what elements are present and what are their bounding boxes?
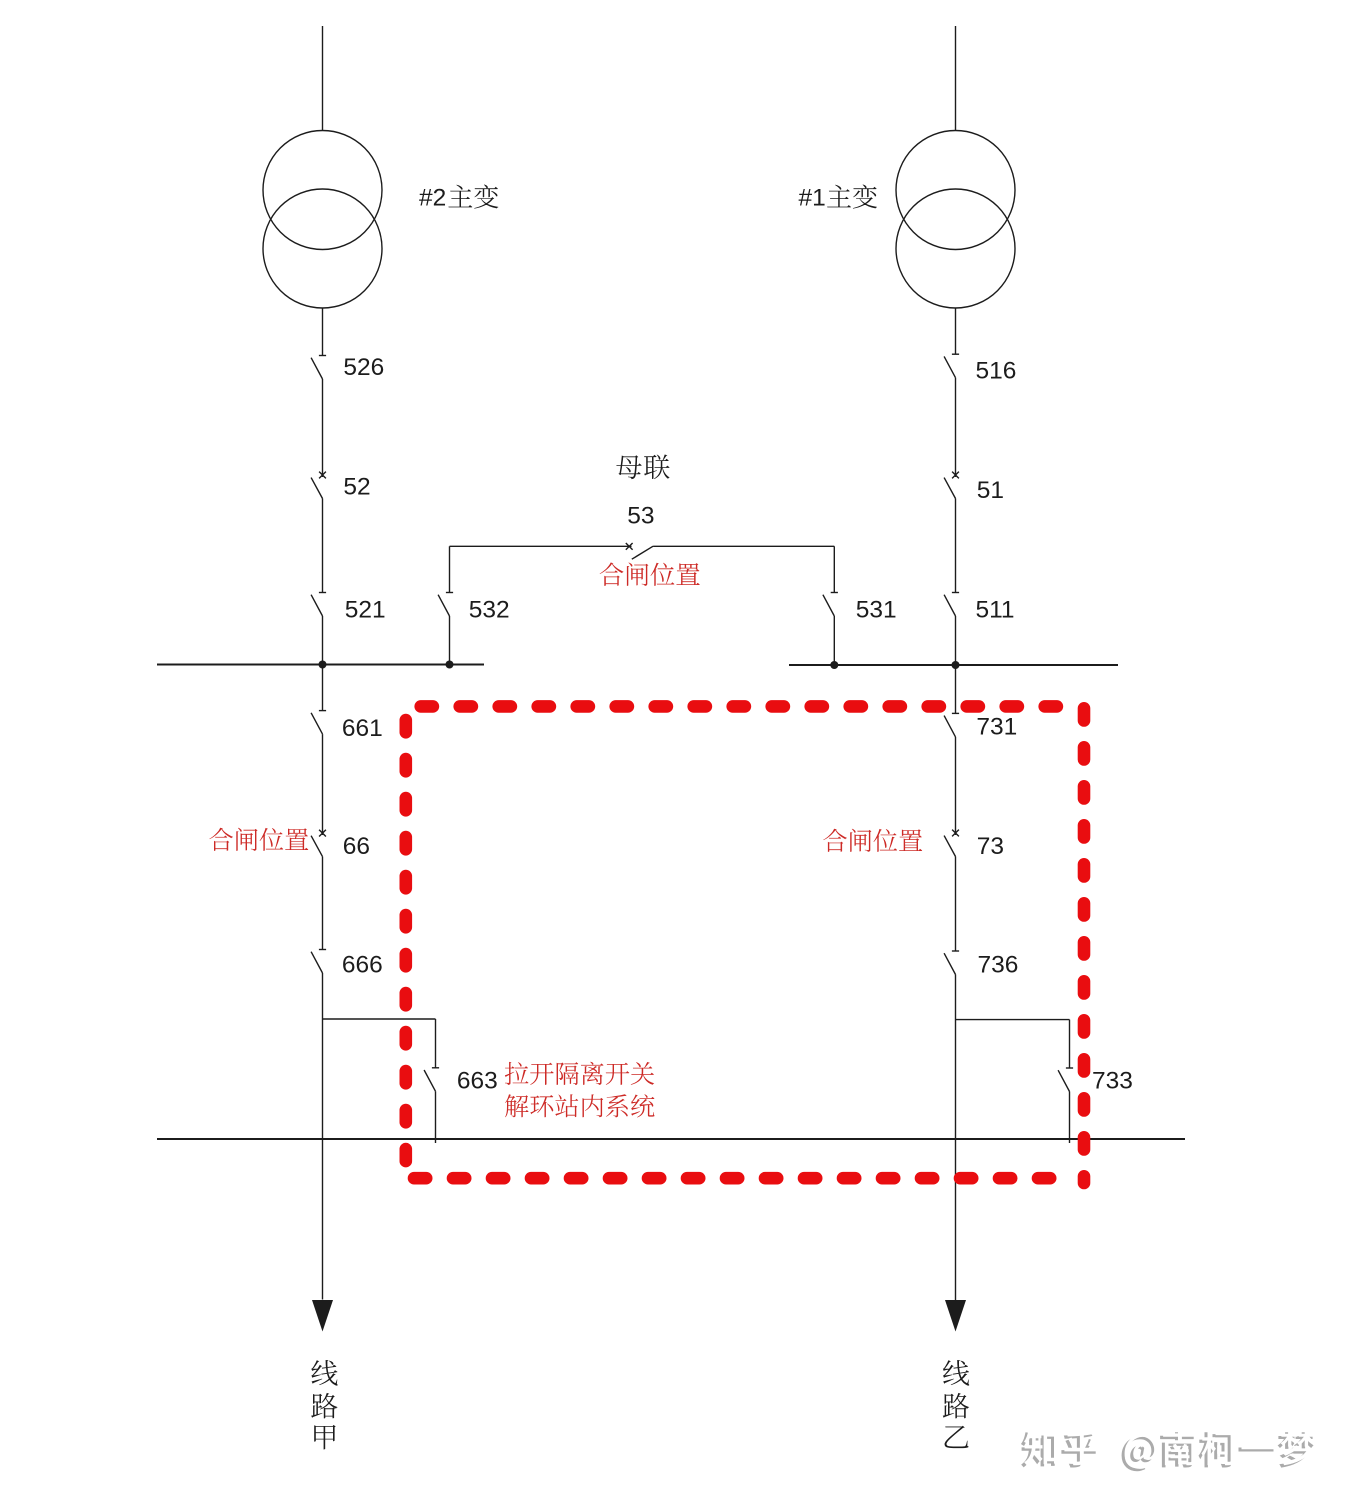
svg-text:53: 53 (627, 503, 654, 530)
svg-text:521: 521 (345, 597, 386, 624)
svg-text:511: 511 (976, 597, 1015, 624)
svg-text:731: 731 (976, 714, 1017, 741)
svg-text:733: 733 (1092, 1068, 1133, 1095)
svg-text:526: 526 (343, 354, 384, 381)
svg-text:52: 52 (343, 474, 370, 501)
svg-text:#1: #1 (799, 185, 826, 212)
svg-text:531: 531 (856, 597, 897, 624)
svg-text:51: 51 (977, 477, 1004, 504)
svg-text:#2: #2 (419, 185, 446, 212)
svg-text:666: 666 (342, 952, 383, 979)
svg-text:516: 516 (976, 358, 1017, 385)
svg-text:73: 73 (977, 833, 1004, 860)
svg-text:736: 736 (978, 952, 1019, 979)
svg-text:663: 663 (457, 1068, 498, 1095)
svg-text:66: 66 (343, 833, 370, 860)
svg-text:661: 661 (342, 715, 383, 742)
svg-text:532: 532 (469, 597, 510, 624)
